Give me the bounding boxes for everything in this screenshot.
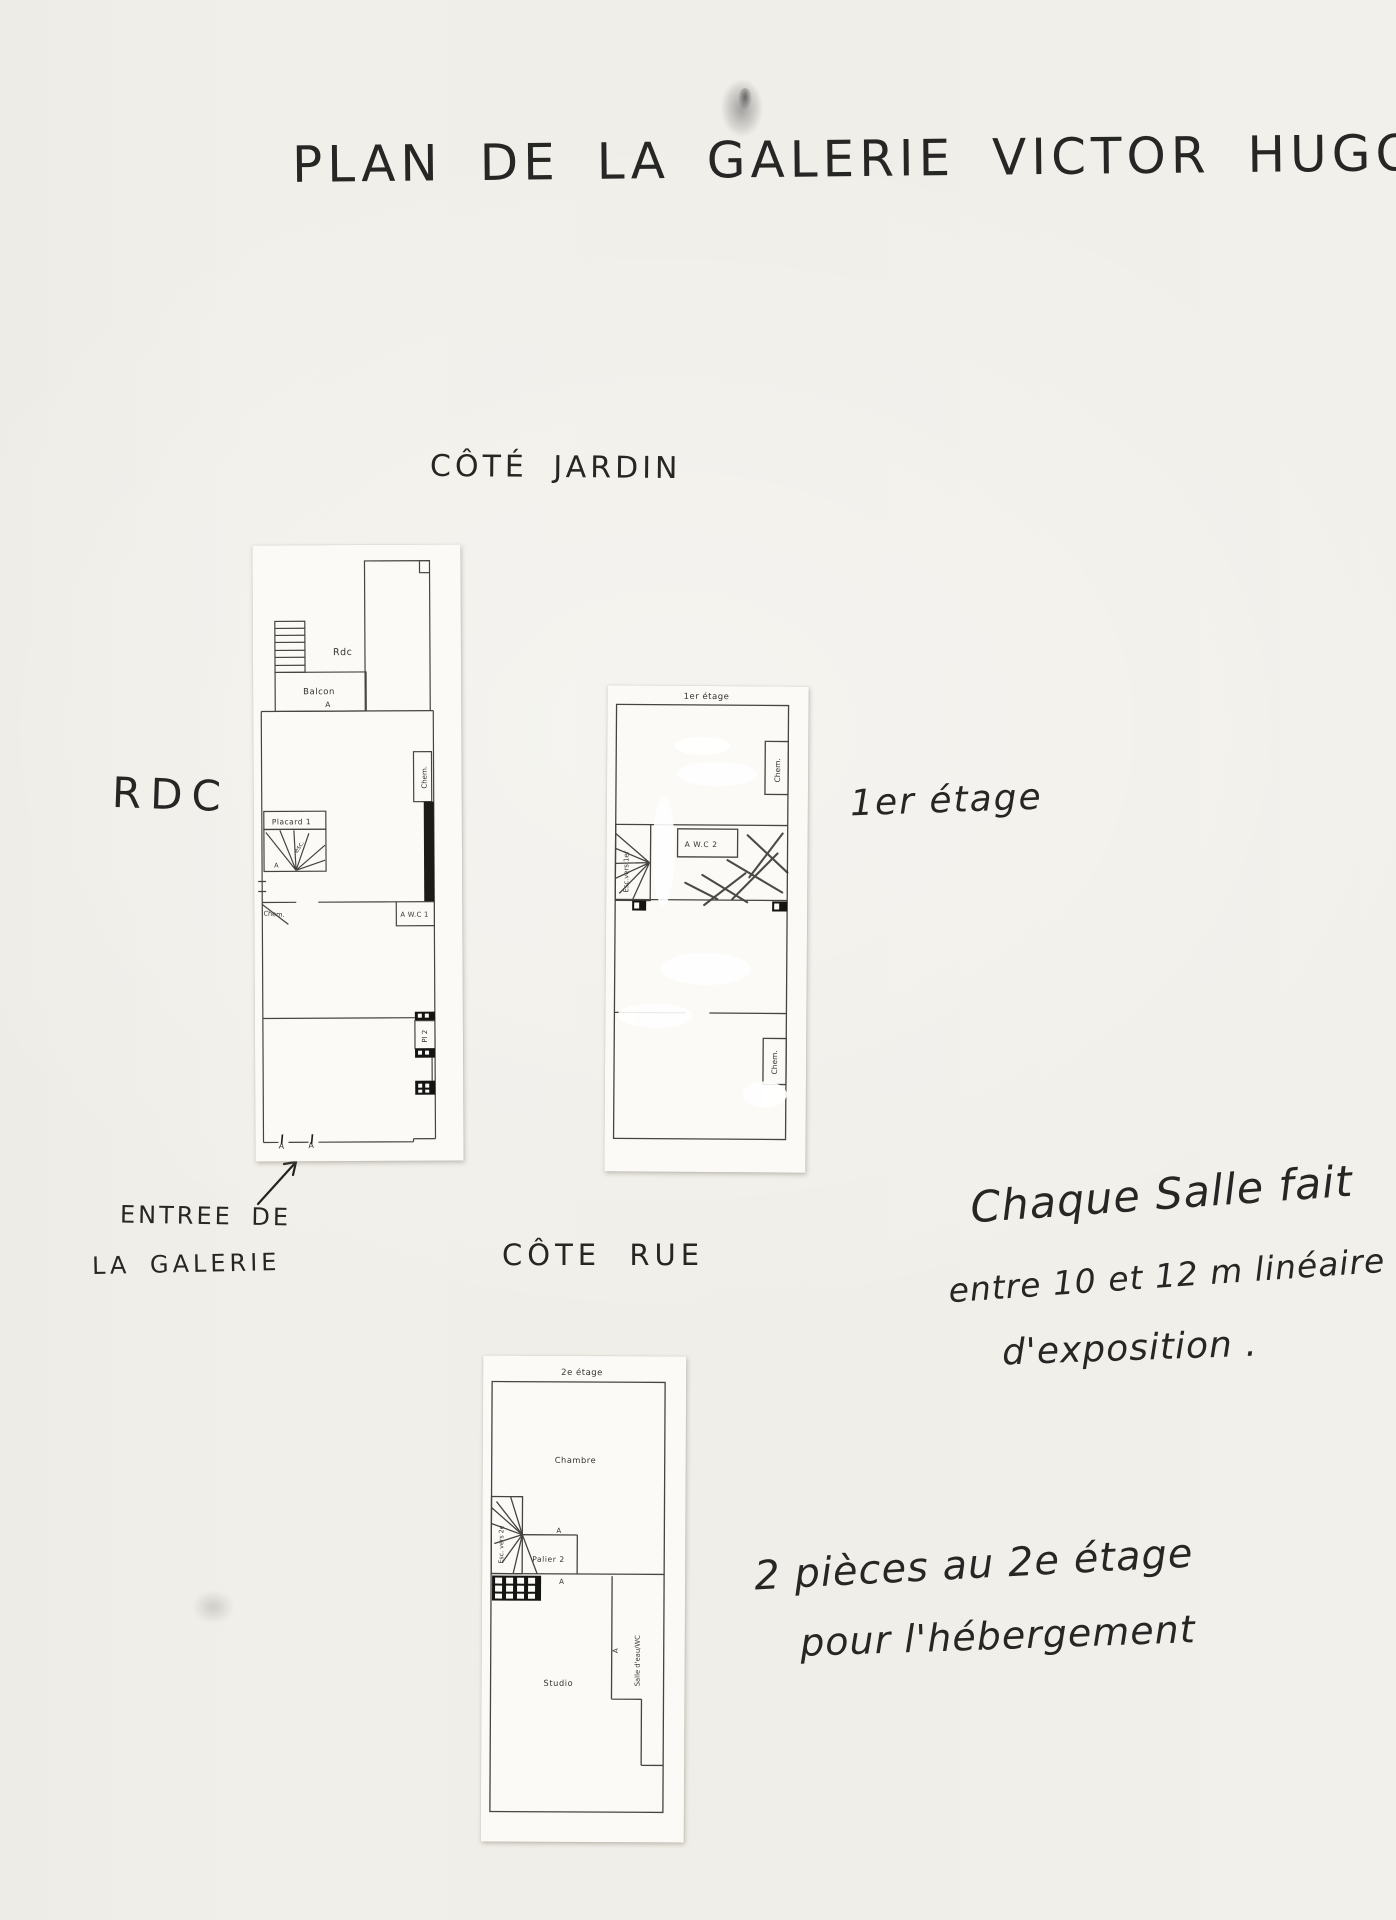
pl2-label: Pl 2 [421, 1030, 429, 1043]
etage2-plan-title: 2e étage [561, 1367, 603, 1378]
rdc-outline [261, 711, 435, 1143]
esc-label: Esc.vers 1er [622, 850, 630, 892]
etage2-plan-paper: 2e étage Chambre Esc. vers 2e Palier 2 A… [481, 1355, 687, 1842]
label-cote-jardin: CÔTÉ JARDIN [430, 449, 682, 486]
rdc-plan-paper: Rdc Balcon A Chem. A W.C 1 Placard 1 esc… [252, 544, 463, 1161]
label-1er-etage: 1er étage [849, 777, 1043, 825]
hatch-door-label: A [559, 1578, 564, 1586]
chimney-left-label: Chem. [263, 910, 285, 919]
palier-label: Palier 2 [532, 1555, 565, 1564]
chimney-right-label: Chem. [421, 766, 429, 789]
note-salle-line1: Chaque Salle fait [969, 1157, 1355, 1234]
label-cote-rue: CÔTE RUE [502, 1238, 704, 1272]
studio-label: Studio [544, 1678, 574, 1688]
esc-label: Esc. vers 2e [498, 1525, 505, 1563]
rdc-room-label: Rdc [333, 647, 352, 658]
chambre-label: Chambre [555, 1455, 597, 1465]
partition-wall-1 [262, 902, 396, 903]
hatched-wall [415, 1012, 435, 1021]
hatched-wall [415, 1081, 435, 1095]
etage1-plan-title: 1er étage [684, 691, 730, 702]
partition-wall [491, 1574, 664, 1575]
rdc-extension-room [364, 561, 430, 711]
placard-label: Placard 1 [272, 817, 311, 826]
salle-eau-label: Salle d'eau/WC [634, 1635, 642, 1686]
pl2-closet [415, 1012, 435, 1095]
hatched-wall [492, 1576, 541, 1601]
door-block-left [632, 900, 646, 910]
balcony-door-label: A [325, 700, 331, 709]
door-a-right-label: A [308, 1141, 315, 1151]
partition-wall-2 [263, 1018, 415, 1019]
ink-smudge-top-speck [738, 88, 752, 110]
smudge-left-lower [192, 1590, 234, 1624]
winder-door-label: A [274, 861, 279, 869]
wc1-label: A W.C 1 [400, 911, 428, 919]
etage1-floor-plan: 1er étage Chem. Esc.vers 1er A W.C 2 Che… [604, 685, 808, 1172]
page-title: PLAN DE LA GALERIE VICTOR HUGO [292, 124, 1396, 194]
palier-door-label: A [556, 1527, 561, 1535]
note-salle-line2: entre 10 et 12 m linéaire [947, 1241, 1386, 1310]
note-2e-line2: pour l'hébergement [799, 1607, 1196, 1665]
etage2-floor-plan: 2e étage Chambre Esc. vers 2e Palier 2 A… [481, 1355, 687, 1842]
door-a-left-label: A [278, 1141, 285, 1151]
note-salle-line3: d'exposition . [1001, 1324, 1258, 1374]
note-2e-line1: 2 pièces au 2e étage [753, 1531, 1194, 1600]
door-block-right [772, 901, 787, 911]
wc2-label: A W.C 2 [685, 840, 718, 849]
chimney-top-label: Chem. [773, 758, 782, 782]
etage1-plan-paper: 1er étage Chem. Esc.vers 1er A W.C 2 Che… [604, 685, 808, 1172]
bathroom-door-label: A [612, 1648, 620, 1653]
chimney-bottom-label: Chem. [770, 1050, 779, 1074]
winder-stairs [615, 824, 651, 900]
rdc-floor-plan: Rdc Balcon A Chem. A W.C 1 Placard 1 esc… [252, 544, 463, 1161]
balcony-label: Balcon [303, 687, 335, 697]
scanned-document-page: PLAN DE LA GALERIE VICTOR HUGO CÔTÉ JARD… [0, 0, 1396, 1920]
label-entree-line2: LA GALERIE [92, 1248, 281, 1280]
label-rdc: RDC [111, 768, 230, 821]
entrance-arrow [250, 1154, 306, 1210]
thick-wall [424, 802, 435, 904]
exterior-stairs [275, 621, 305, 672]
hatched-wall [415, 1049, 435, 1058]
